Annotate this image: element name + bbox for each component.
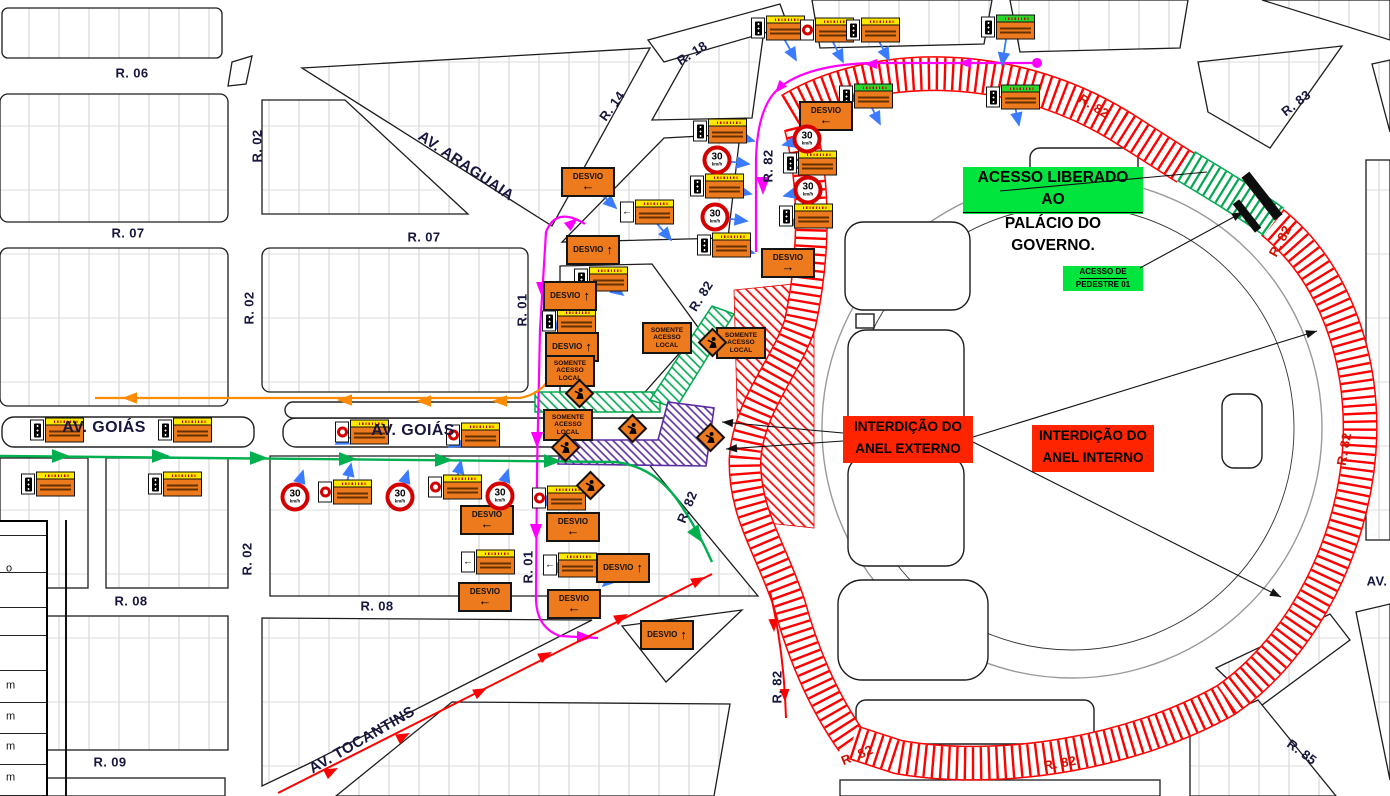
street-label: R. 82: [686, 278, 716, 314]
warning-plate-sign: [334, 419, 390, 446]
detour-sign: DESVIO←: [561, 167, 615, 197]
local-access-only-sign: SOMENTEACESSOLOCAL: [642, 322, 692, 354]
sign-leader-arrow: [545, 323, 561, 327]
warning-plate-sign: [845, 17, 901, 44]
worker-icon: [559, 441, 572, 454]
sign-leader-arrow: [784, 38, 796, 60]
sign-leader-arrow: [608, 284, 623, 295]
speed-limit-30-sign: 30km/h: [794, 176, 823, 205]
traffic-light-icon: [34, 423, 41, 437]
detour-sign: DESVIO←: [546, 512, 600, 542]
detour-sign: DESVIO↑: [543, 281, 597, 311]
traffic-light-icon: [578, 272, 585, 286]
warning-plate-sign: [317, 479, 373, 506]
roadworks-diamond-sign: [563, 377, 595, 409]
callout-line: INTERDIÇÃO DO: [1039, 428, 1147, 443]
traffic-light-icon: [25, 477, 32, 491]
sign-leader-arrow: [503, 470, 508, 488]
warning-plate-sign: [689, 173, 745, 200]
sign-leader-arrow: [597, 190, 616, 208]
arrow-left-icon: ←: [568, 603, 581, 613]
legend-cutoff-text: m: [6, 740, 15, 752]
callout-line: ANEL EXTERNO: [855, 441, 961, 456]
yellow-header-strip: [548, 487, 585, 494]
street-label: R. 83: [1278, 87, 1313, 119]
legend-row-line: [0, 702, 46, 703]
local-access-only-sign: SOMENTEACESSOLOCAL: [545, 355, 595, 387]
street-label: R. 14: [596, 88, 628, 124]
sign-leader-arrow: [727, 161, 749, 164]
prohibition-circle-icon: [448, 430, 459, 441]
work-zone-signs: ←←←DESVIO←DESVIO←DESVIO→DESVIO↑DESVIO↑DE…: [0, 0, 1390, 796]
roadworks-diamond-sign: [696, 326, 728, 358]
sign-leader-arrow: [347, 464, 351, 483]
sign-leader-arrow: [1015, 106, 1019, 125]
detour-routes: [0, 58, 1042, 793]
sign-leader-arrow: [674, 330, 689, 335]
speed-limit-30-sign: 30km/h: [386, 483, 415, 512]
arrow-left-icon: ←: [463, 557, 473, 567]
sign-leader-arrow: [457, 461, 461, 479]
prohibition-circle-icon: [337, 427, 348, 438]
street-label: R. 82: [1266, 223, 1295, 259]
palace-access-band: [1186, 166, 1283, 233]
legend-cutoff-text: m: [6, 771, 15, 783]
street-label: R. 01: [515, 293, 530, 326]
warning-plate-sign: [838, 83, 894, 110]
sign-leader-arrow: [496, 556, 512, 560]
legend-row-line: [0, 572, 46, 573]
street-label: R. 82: [1076, 91, 1112, 121]
warning-plate-sign: [445, 422, 501, 449]
sign-leader-arrow: [191, 432, 205, 436]
sign-leader-arrow: [495, 516, 511, 519]
traffic-light-icon: [985, 20, 992, 34]
detour-sign: DESVIO←: [460, 505, 514, 535]
sign-leader-arrow: [1002, 39, 1006, 65]
sign-leader-arrow: [544, 427, 560, 431]
speed-limit-30-sign: 30km/h: [703, 146, 732, 175]
green-header-strip: [1002, 86, 1039, 93]
legend-cutoff-text: m: [6, 710, 15, 722]
street-label: R. 08: [114, 594, 147, 609]
traffic-light-icon: [697, 124, 704, 138]
sign-leader-arrow: [548, 567, 563, 571]
callout-line: PEDESTRE 01: [1076, 280, 1130, 289]
sign-leader-arrow: [603, 574, 617, 586]
barrier-bar: [1241, 172, 1282, 221]
local-access-only-sign: SOMENTEACESSOLOCAL: [543, 409, 593, 441]
yellow-header-strip: [164, 473, 201, 480]
legend-row-line: [0, 733, 46, 734]
yellow-header-strip: [636, 201, 673, 208]
traffic-light-icon: [755, 21, 762, 35]
sign-leader-arrow: [550, 606, 566, 610]
sign-leader-arrow: [601, 254, 617, 264]
arrow-up-icon: ↑: [583, 291, 590, 301]
traffic-light-icon: [162, 423, 169, 437]
sign-leader-arrow: [54, 479, 66, 482]
warning-plate-sign: [692, 118, 748, 145]
detour-sign: DESVIO↑: [566, 235, 620, 265]
yellow-header-strip: [462, 424, 499, 431]
yellow-header-strip: [351, 421, 388, 428]
street-label: R. 85: [1284, 736, 1320, 768]
street-label: R. 82: [839, 742, 875, 768]
sign-leader-arrow: [784, 192, 800, 196]
traffic-light-icon: [783, 209, 790, 223]
prohibition-circle-icon: [534, 493, 545, 504]
yellow-header-strip: [444, 476, 481, 483]
yellow-header-strip: [477, 551, 514, 558]
sign-leader-arrow: [298, 471, 303, 489]
warning-plate-sign: ←: [460, 549, 516, 576]
roadworks-diamond-sign: [574, 469, 606, 501]
legend-cutoff-text: m: [6, 679, 15, 691]
street-label: R. 07: [111, 226, 144, 241]
sign-leader-arrow: [725, 218, 747, 221]
sign-leader-arrow: [832, 40, 843, 62]
street-label: R. 82: [770, 670, 785, 703]
prohibition-circle-icon: [430, 482, 441, 493]
yellow-header-strip: [46, 419, 83, 426]
yellow-header-strip: [590, 268, 627, 275]
traffic-light-icon: [694, 179, 701, 193]
yellow-header-strip: [816, 19, 853, 26]
arrow-left-icon: ←: [622, 207, 632, 217]
traffic-light-icon: [701, 238, 708, 252]
detour-sign: DESVIO←: [458, 582, 512, 612]
speed-limit-30-sign: 30km/h: [701, 203, 730, 232]
traffic-light-icon: [152, 477, 159, 491]
traffic-light-icon: [787, 156, 794, 170]
street-label: R. 02: [242, 291, 257, 324]
traffic-light-icon: [850, 23, 857, 37]
warning-plate-sign: [531, 485, 587, 512]
sign-leader-arrow: [493, 593, 509, 596]
yellow-header-strip: [334, 481, 371, 488]
legend-row-line: [0, 635, 46, 636]
warning-plate-sign: [541, 308, 597, 335]
traffic-light-icon: [546, 314, 553, 328]
arrow-left-icon: ←: [567, 526, 580, 536]
warning-plate-sign: [147, 471, 203, 498]
arrow-up-icon: ↑: [636, 563, 643, 573]
avenue-outlines: [2, 402, 697, 447]
sign-leader-arrow: [643, 639, 659, 649]
warning-plate-sign: [573, 266, 629, 293]
arrow-left-icon: ←: [481, 519, 494, 529]
arrow-up-icon: ↑: [606, 245, 613, 255]
sign-leader-arrow: [537, 500, 552, 504]
sign-leaders: [0, 0, 1390, 796]
yellow-header-strip: [706, 175, 743, 182]
speed-limit-30-sign: 30km/h: [486, 482, 515, 511]
warning-plate-sign: [782, 150, 838, 177]
legend-row-line: [0, 607, 46, 608]
detour-sign: DESVIO↑: [545, 332, 599, 362]
prohibition-circle-icon: [802, 25, 813, 36]
arrow-up-icon: ↑: [680, 630, 687, 640]
arrow-up-icon: ↑: [585, 342, 592, 352]
warning-plate-sign: [985, 84, 1041, 111]
sign-leader-arrow: [721, 345, 735, 349]
warning-plate-sign: [980, 14, 1036, 41]
worker-icon: [573, 387, 586, 400]
callout-line: ACESSO LIBERADO AO: [963, 167, 1143, 213]
yellow-header-strip: [709, 120, 746, 127]
sign-leader-arrow: [548, 349, 564, 353]
street-labels: R. 06R. 02R. 07R. 07AV. ARAGUAIAR. 14R. …: [0, 0, 1390, 796]
warning-plate-sign: [696, 232, 752, 259]
warning-plate-sign: [157, 417, 213, 444]
speed-limit-30-sign: 30km/h: [281, 483, 310, 512]
sign-leader-arrow: [449, 439, 465, 447]
legend-row-line: [0, 670, 46, 671]
arrow-left-icon: ←: [582, 181, 595, 191]
sign-leader-arrow: [782, 219, 798, 224]
detour-sign: DESVIO←: [547, 589, 601, 619]
sign-leader-arrow: [63, 432, 77, 436]
yellow-header-strip: [558, 310, 595, 317]
street-label: R. 09: [93, 755, 126, 770]
legend-table: ommmm: [0, 520, 48, 796]
legend-row-line: [0, 764, 46, 765]
sign-leader-arrow: [808, 125, 820, 144]
closure-area-west: [734, 282, 814, 528]
yellow-header-strip: [795, 205, 832, 212]
green-header-strip: [855, 85, 892, 92]
street-label: AV.: [1367, 574, 1388, 589]
sign-leader-arrow: [336, 436, 354, 444]
detour-sign: DESVIO←: [799, 101, 853, 131]
sign-leader-arrow: [403, 471, 408, 489]
warning-plate-sign: [799, 17, 855, 44]
callout-line: INTERDIÇÃO DO: [854, 419, 962, 434]
street-label: R. 07: [407, 230, 440, 245]
worker-icon: [704, 431, 717, 444]
yellow-header-strip: [174, 419, 211, 426]
street-label: R. 82: [1042, 753, 1077, 774]
warning-plate-sign: [20, 471, 76, 498]
sign-leader-arrow: [870, 105, 880, 124]
outer-ring-closure-callout: INTERDIÇÃO DO ANEL EXTERNO: [843, 416, 973, 463]
street-label: R. 08: [360, 599, 393, 614]
detour-sign: DESVIO→: [761, 248, 815, 278]
yellow-header-strip: [799, 152, 836, 159]
warning-plate-sign: ←: [542, 552, 598, 579]
speed-limit-30-sign: 30km/h: [793, 125, 822, 154]
ring-closure-bands: [745, 74, 1360, 764]
street-label: R. 02: [240, 542, 255, 575]
yellow-header-strip: [559, 554, 596, 561]
prohibition-circle-icon: [320, 487, 331, 498]
legend-row-line: [0, 535, 46, 536]
warning-plate-sign: [778, 203, 834, 230]
detour-sign: DESVIO↑: [596, 553, 650, 583]
street-label: AV. ARAGUAIA: [415, 128, 517, 205]
sign-leader-arrow: [549, 529, 565, 533]
pedestrian-access-callout: ACESSO DE PEDESTRE 01: [1063, 266, 1143, 291]
warning-plate-sign: [29, 417, 85, 444]
worker-icon: [584, 479, 597, 492]
arrow-left-icon: ←: [545, 560, 555, 570]
traffic-light-icon: [990, 90, 997, 104]
street-label: R. 82: [674, 489, 700, 525]
green-header-strip: [997, 16, 1034, 23]
street-label: R. 06: [115, 66, 148, 81]
access-corridors: [535, 306, 734, 466]
worker-icon: [706, 336, 719, 349]
sign-leader-arrow: [878, 40, 889, 60]
sign-leader-arrow: [764, 265, 780, 269]
callout-line: ACESSO DE: [1079, 266, 1126, 279]
access-granted-callout: ACESSO LIBERADO AO PALÁCIO DO GOVERNO.: [963, 167, 1143, 214]
street-label: AV. TOCANTINS: [306, 703, 418, 777]
worker-icon: [626, 422, 639, 435]
warning-plate-sign: ←: [619, 199, 675, 226]
barrier-bar: [1233, 199, 1261, 232]
yellow-header-strip: [37, 473, 74, 480]
street-label: R. 01: [521, 550, 536, 583]
sign-leader-arrow: [655, 221, 671, 240]
callout-line: ANEL INTERNO: [1042, 450, 1143, 465]
inner-ring-closure-callout: INTERDIÇÃO DO ANEL INTERNO: [1032, 425, 1154, 472]
sign-leader-arrow: [734, 248, 754, 253]
traffic-light-icon: [843, 89, 850, 103]
city-blocks: [0, 0, 1390, 796]
callout-leaders: [0, 0, 1390, 796]
detour-sign: DESVIO↑: [640, 620, 694, 650]
sign-leader-arrow: [546, 298, 562, 302]
sign-leader-arrow: [784, 166, 802, 171]
roadworks-diamond-sign: [549, 431, 581, 463]
sign-leader-arrow: [181, 479, 193, 482]
sign-leader-arrow: [783, 141, 799, 145]
map-canvas: [0, 0, 1390, 796]
legend-cutoff-text: o: [6, 562, 12, 574]
yellow-header-strip: [862, 19, 899, 26]
street-label: R. 82: [761, 149, 776, 182]
arrow-right-icon: →: [782, 262, 795, 272]
sign-leader-arrow: [728, 189, 751, 194]
warning-plate-sign: [427, 474, 483, 501]
street-label: R. 82: [1334, 431, 1355, 466]
street-label: R. 18: [674, 38, 710, 68]
sign-leader-arrow: [731, 134, 754, 141]
local-access-only-sign: SOMENTEACESSOLOCAL: [716, 327, 766, 359]
callouts: ACESSO LIBERADO AO PALÁCIO DO GOVERNO. A…: [0, 0, 1390, 796]
yellow-header-strip: [713, 234, 750, 241]
roadworks-diamond-sign: [616, 412, 648, 444]
street-label: R. 02: [250, 129, 265, 162]
sign-leader-arrow: [546, 373, 562, 377]
traffic-closure-map: ←←←DESVIO←DESVIO←DESVIO→DESVIO↑DESVIO↑DE…: [0, 0, 1390, 796]
street-label: AV. GOIÁS: [62, 419, 146, 437]
yellow-header-strip: [767, 17, 804, 24]
callout-line: PALÁCIO DO GOVERNO.: [1005, 215, 1101, 254]
legend-table-cutoff: ommmm: [0, 0, 1390, 796]
roadworks-diamond-sign: [694, 421, 726, 453]
street-label: AV. GOIÁS: [371, 422, 455, 440]
warning-plate-sign: [750, 15, 806, 42]
plaza-blocks: [822, 148, 1322, 744]
arrow-left-icon: ←: [479, 596, 492, 606]
arrow-left-icon: ←: [820, 115, 833, 125]
